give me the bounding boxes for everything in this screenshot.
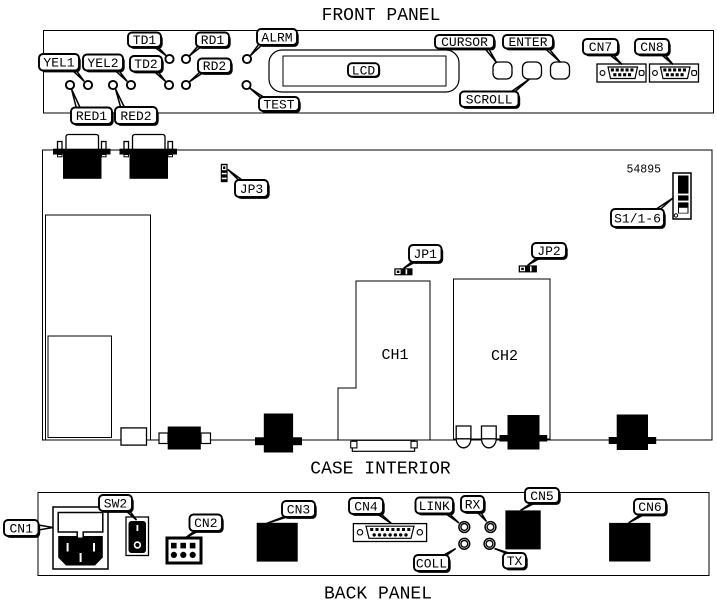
svg-text:CN6: CN6	[638, 500, 661, 515]
svg-text:TEST: TEST	[263, 98, 294, 113]
svg-text:COLL: COLL	[416, 557, 447, 572]
svg-text:CH1: CH1	[381, 347, 408, 364]
svg-text:54895: 54895	[627, 164, 662, 177]
svg-text:CH2: CH2	[491, 348, 518, 365]
svg-text:CURSOR: CURSOR	[441, 35, 488, 50]
svg-text:TD2: TD2	[134, 57, 157, 72]
svg-text:BACK PANEL: BACK PANEL	[324, 585, 432, 605]
svg-text:LINK: LINK	[419, 499, 450, 514]
svg-text:JP1: JP1	[413, 247, 437, 262]
svg-text:SW2: SW2	[104, 497, 127, 512]
svg-text:RD1: RD1	[201, 33, 225, 48]
svg-text:CN7: CN7	[589, 40, 612, 55]
svg-text:CN8: CN8	[640, 40, 663, 55]
svg-text:CN1: CN1	[9, 522, 33, 537]
svg-text:JP2: JP2	[537, 244, 560, 259]
svg-text:S1/1-6: S1/1-6	[614, 212, 661, 227]
svg-text:CN2: CN2	[194, 516, 217, 531]
svg-text:TD1: TD1	[133, 33, 157, 48]
svg-text:RX: RX	[465, 498, 481, 513]
svg-text:RD2: RD2	[203, 59, 226, 74]
svg-text:CASE INTERIOR: CASE INTERIOR	[310, 460, 451, 480]
svg-text:ALRM: ALRM	[261, 31, 292, 46]
svg-text:RED2: RED2	[120, 109, 151, 124]
svg-text:YEL2: YEL2	[87, 56, 118, 71]
svg-text:RED1: RED1	[76, 109, 107, 124]
svg-text:ENTER: ENTER	[508, 35, 547, 50]
svg-text:YEL1: YEL1	[43, 56, 74, 71]
svg-text:CN3: CN3	[287, 503, 310, 518]
svg-text:FRONT PANEL: FRONT PANEL	[322, 6, 441, 26]
svg-text:LCD: LCD	[352, 63, 376, 78]
svg-text:JP3: JP3	[240, 182, 263, 197]
svg-text:SCROLL: SCROLL	[466, 93, 513, 108]
svg-text:CN4: CN4	[354, 500, 378, 515]
svg-text:CN5: CN5	[530, 489, 553, 504]
svg-text:TX: TX	[507, 554, 523, 569]
